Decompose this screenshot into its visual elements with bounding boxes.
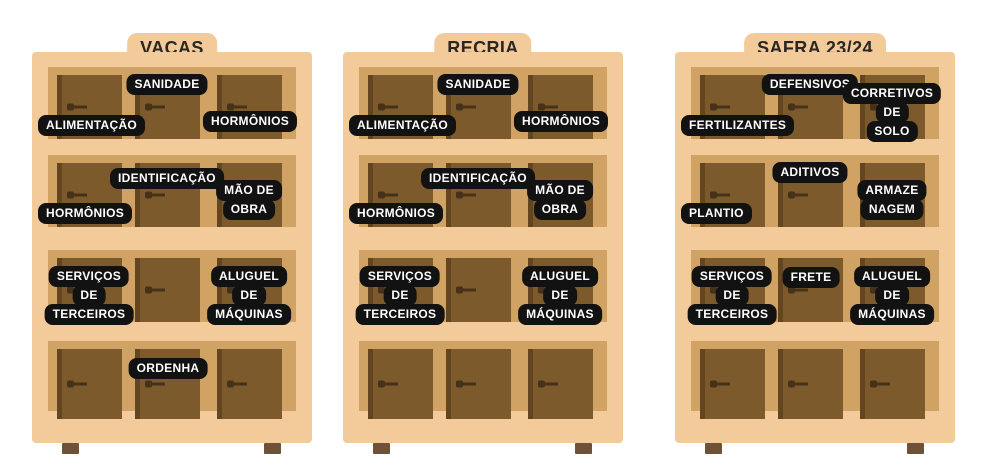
cost-label-line: HORMÔNIOS [203, 111, 297, 132]
cost-label-line: ALUGUEL [211, 266, 287, 287]
cost-label-line: MÁQUINAS [850, 304, 934, 325]
door [700, 349, 765, 419]
shelf-row-4 [691, 341, 939, 411]
handle-bar-icon [383, 106, 398, 109]
handle-bar-icon [232, 383, 247, 386]
door [528, 349, 593, 419]
cost-label: HORMÔNIOS [514, 111, 608, 132]
cabinet-foot [373, 443, 390, 454]
handle-bar-icon [150, 289, 165, 292]
door-edge [700, 349, 705, 419]
handle-bar-icon [461, 194, 476, 197]
door [135, 258, 200, 322]
door-edge [446, 258, 451, 322]
cost-label-line: SANIDADE [437, 74, 518, 95]
handle-bar-icon [461, 383, 476, 386]
handle-bar-icon [715, 383, 730, 386]
door-handle-icon [710, 192, 730, 199]
door-handle-icon [870, 381, 890, 388]
shelf-row-3: SERVIÇOSDETERCEIROSALUGUELDEMÁQUINAS [359, 250, 607, 322]
cost-label-line: SERVIÇOS [360, 266, 440, 287]
handle-bar-icon [793, 106, 808, 109]
shelf-row-1: ALIMENTAÇÃOSANIDADEHORMÔNIOS [48, 67, 296, 139]
handle-bar-icon [72, 194, 87, 197]
cost-label: SANIDADE [126, 74, 207, 95]
door-edge [446, 349, 451, 419]
cost-label: ALIMENTAÇÃO [38, 115, 145, 136]
cabinet-foot [575, 443, 592, 454]
cost-label-line: ALIMENTAÇÃO [38, 115, 145, 136]
door [57, 349, 122, 419]
cost-label-line: MÁQUINAS [207, 304, 291, 325]
cost-label-line: SERVIÇOS [692, 266, 772, 287]
cost-label: ORDENHA [129, 358, 208, 379]
cost-label-line: DE [715, 285, 748, 306]
cost-label: MÃO DEOBRA [216, 180, 282, 220]
door-handle-icon [710, 104, 730, 111]
cost-label-line: OBRA [534, 199, 587, 220]
shelf-row-4: ORDENHA [48, 341, 296, 411]
door-handle-icon [145, 287, 165, 294]
door-edge [57, 349, 62, 419]
cost-label-line: HORMÔNIOS [349, 203, 443, 224]
door-handle-icon [788, 192, 808, 199]
door-edge [217, 349, 222, 419]
shelf-row-3: SERVIÇOSDETERCEIROSALUGUELDEMÁQUINAS [48, 250, 296, 322]
cost-label-line: DE [383, 285, 416, 306]
handle-bar-icon [232, 106, 247, 109]
cost-label-line: ALIMENTAÇÃO [349, 115, 456, 136]
shelf-row-1: FERTILIZANTESDEFENSIVOSCORRETIVOSDESOLO [691, 67, 939, 139]
cost-label-line: FRETE [783, 267, 840, 288]
cost-label: HORMÔNIOS [203, 111, 297, 132]
handle-bar-icon [150, 383, 165, 386]
handle-bar-icon [793, 194, 808, 197]
handle-bar-icon [150, 194, 165, 197]
handle-bar-icon [715, 194, 730, 197]
cost-label: SANIDADE [437, 74, 518, 95]
cabinet-foot [705, 443, 722, 454]
cabinet-recria: RECRIAALIMENTAÇÃOSANIDADEHORMÔNIOSHORMÔN… [343, 33, 623, 457]
cost-label-line: DE [875, 285, 908, 306]
cost-label-line: HORMÔNIOS [38, 203, 132, 224]
handle-bar-icon [72, 383, 87, 386]
door-edge [860, 349, 865, 419]
cost-label-line: CORRETIVOS [843, 83, 941, 104]
door-handle-icon [456, 287, 476, 294]
door-handle-icon [538, 381, 558, 388]
cost-label-line: MÃO DE [527, 180, 593, 201]
cabinet-body: ALIMENTAÇÃOSANIDADEHORMÔNIOSHORMÔNIOSIDE… [343, 52, 623, 443]
cabinet-safra-23-24: SAFRA 23/24FERTILIZANTESDEFENSIVOSCORRET… [675, 33, 955, 457]
door [860, 349, 925, 419]
door [446, 349, 511, 419]
door-edge [528, 349, 533, 419]
door-edge [778, 349, 783, 419]
cost-label-line: SANIDADE [126, 74, 207, 95]
shelf-row-2: HORMÔNIOSIDENTIFICAÇÃOMÃO DEOBRA [48, 155, 296, 227]
handle-bar-icon [461, 289, 476, 292]
door-handle-icon [227, 104, 247, 111]
handle-bar-icon [72, 106, 87, 109]
cost-label-line: DE [72, 285, 105, 306]
door-handle-icon [145, 381, 165, 388]
cost-label: CORRETIVOSDESOLO [843, 83, 941, 142]
cost-label: IDENTIFICAÇÃO [421, 168, 535, 189]
door-handle-icon [145, 104, 165, 111]
door-handle-icon [456, 104, 476, 111]
cost-label-line: SERVIÇOS [49, 266, 129, 287]
door-handle-icon [456, 192, 476, 199]
shelf-row-1: ALIMENTAÇÃOSANIDADEHORMÔNIOS [359, 67, 607, 139]
cost-label-line: ORDENHA [129, 358, 208, 379]
door-handle-icon [67, 381, 87, 388]
cost-label-line: MÁQUINAS [518, 304, 602, 325]
cost-label: PLANTIO [681, 203, 752, 224]
cost-label: MÃO DEOBRA [527, 180, 593, 220]
door-handle-icon [227, 381, 247, 388]
cost-label-line: IDENTIFICAÇÃO [110, 168, 224, 189]
cost-label: SERVIÇOSDETERCEIROS [356, 266, 445, 325]
cabinet-foot [264, 443, 281, 454]
cabinet-foot [907, 443, 924, 454]
cost-label-line: MÃO DE [216, 180, 282, 201]
cost-label: HORMÔNIOS [38, 203, 132, 224]
door [446, 258, 511, 322]
shelf-row-2: HORMÔNIOSIDENTIFICAÇÃOMÃO DEOBRA [359, 155, 607, 227]
handle-bar-icon [383, 383, 398, 386]
handle-bar-icon [715, 106, 730, 109]
cost-label-line: ARMAZE [857, 180, 926, 201]
shelf-row-4 [359, 341, 607, 411]
door-handle-icon [710, 381, 730, 388]
cost-label: FERTILIZANTES [681, 115, 794, 136]
handle-bar-icon [543, 383, 558, 386]
handle-bar-icon [150, 106, 165, 109]
door-handle-icon [538, 104, 558, 111]
handle-bar-icon [543, 106, 558, 109]
cost-label-line: NAGEM [861, 199, 923, 220]
cost-label-line: DE [543, 285, 576, 306]
cabinet-body: ALIMENTAÇÃOSANIDADEHORMÔNIOSHORMÔNIOSIDE… [32, 52, 312, 443]
cost-label-line: FERTILIZANTES [681, 115, 794, 136]
cost-label-line: ADITIVOS [772, 162, 847, 183]
cost-label-line: ALUGUEL [854, 266, 930, 287]
cost-label: SERVIÇOSDETERCEIROS [688, 266, 777, 325]
cost-label-line: TERCEIROS [45, 304, 134, 325]
handle-bar-icon [875, 383, 890, 386]
door-handle-icon [378, 192, 398, 199]
door-handle-icon [378, 104, 398, 111]
door-handle-icon [67, 192, 87, 199]
cost-label-line: ALUGUEL [522, 266, 598, 287]
shelf-row-3: SERVIÇOSDETERCEIROSFRETEALUGUELDEMÁQUINA… [691, 250, 939, 322]
cabinet-foot [62, 443, 79, 454]
cost-label: ALUGUELDEMÁQUINAS [207, 266, 291, 325]
door-edge [135, 258, 140, 322]
cabinet-vacas: VACASALIMENTAÇÃOSANIDADEHORMÔNIOSHORMÔNI… [32, 33, 312, 457]
handle-bar-icon [793, 289, 808, 292]
handle-bar-icon [383, 194, 398, 197]
cost-label: ALUGUELDEMÁQUINAS [850, 266, 934, 325]
door-edge [368, 349, 373, 419]
cost-label-line: HORMÔNIOS [514, 111, 608, 132]
cost-label: ARMAZENAGEM [857, 180, 926, 220]
door-handle-icon [145, 192, 165, 199]
door [217, 349, 282, 419]
cost-label-line: PLANTIO [681, 203, 752, 224]
door-handle-icon [788, 104, 808, 111]
cost-label: IDENTIFICAÇÃO [110, 168, 224, 189]
door [368, 349, 433, 419]
cost-label-line: DE [875, 102, 908, 123]
cost-label-line: TERCEIROS [688, 304, 777, 325]
handle-bar-icon [793, 383, 808, 386]
door-handle-icon [788, 381, 808, 388]
cost-label-line: IDENTIFICAÇÃO [421, 168, 535, 189]
cost-label: SERVIÇOSDETERCEIROS [45, 266, 134, 325]
cost-label-line: SOLO [866, 121, 917, 142]
door [778, 349, 843, 419]
cost-label: HORMÔNIOS [349, 203, 443, 224]
cost-label-line: DE [232, 285, 265, 306]
cost-label-line: OBRA [223, 199, 276, 220]
door-handle-icon [67, 104, 87, 111]
door-handle-icon [456, 381, 476, 388]
cost-label: ALIMENTAÇÃO [349, 115, 456, 136]
cost-label-line: TERCEIROS [356, 304, 445, 325]
cost-label: ADITIVOS [772, 162, 847, 183]
shelf-row-2: PLANTIOADITIVOSARMAZENAGEM [691, 155, 939, 227]
cost-label: FRETE [783, 267, 840, 288]
handle-bar-icon [461, 106, 476, 109]
cabinet-body: FERTILIZANTESDEFENSIVOSCORRETIVOSDESOLOP… [675, 52, 955, 443]
infographic-canvas: VACASALIMENTAÇÃOSANIDADEHORMÔNIOSHORMÔNI… [0, 0, 1001, 476]
cost-label: ALUGUELDEMÁQUINAS [518, 266, 602, 325]
door-handle-icon [378, 381, 398, 388]
